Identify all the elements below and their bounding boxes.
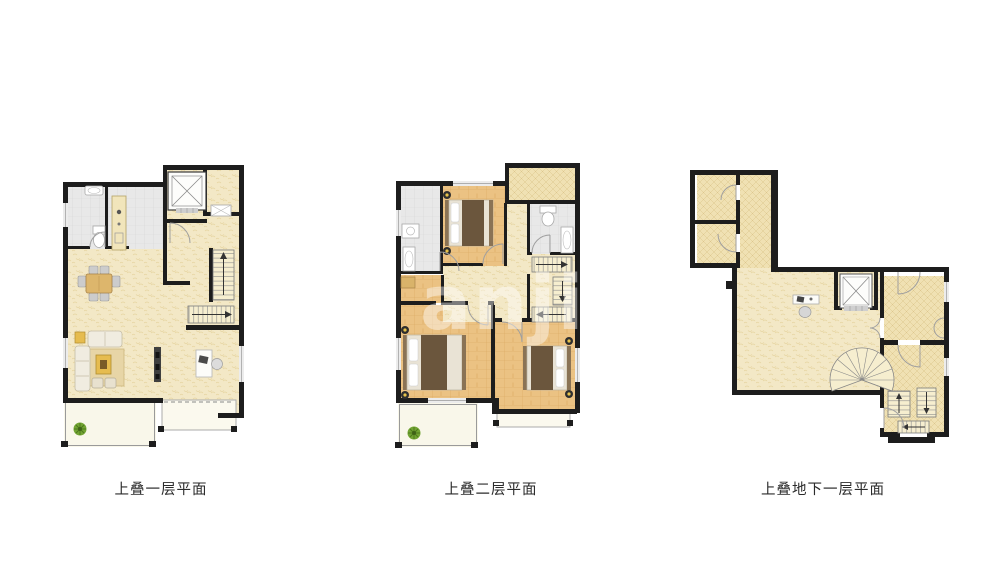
bay-window bbox=[493, 413, 573, 427]
floorplan-basement bbox=[690, 170, 949, 443]
caption-first-floor: 上叠一层平面 bbox=[51, 478, 271, 499]
stairs-up-icon bbox=[888, 391, 910, 417]
stairs-mid-icon bbox=[553, 277, 572, 305]
elevator-icon bbox=[840, 274, 872, 311]
kitchen-island bbox=[112, 196, 126, 250]
caption-second-floor: 上叠二层平面 bbox=[381, 478, 601, 499]
bed-icon-north bbox=[443, 191, 493, 255]
balcony bbox=[61, 400, 156, 447]
stairs-down-icon bbox=[917, 388, 936, 417]
balcony bbox=[395, 403, 478, 448]
plant-icon bbox=[408, 427, 421, 440]
caption-basement: 上叠地下一层平面 bbox=[713, 478, 933, 499]
stairs-run-icon bbox=[532, 257, 572, 272]
entry-steps-icon bbox=[898, 421, 929, 433]
stairs-down-icon bbox=[532, 307, 572, 322]
bed-icon-east bbox=[523, 337, 573, 398]
bath-sink-icon bbox=[561, 227, 573, 253]
floorplan-second-floor bbox=[395, 163, 580, 448]
laundry-sink-icon bbox=[403, 247, 415, 271]
dresser bbox=[401, 277, 415, 288]
ottoman bbox=[92, 378, 103, 388]
desk-chair-icon bbox=[212, 359, 223, 370]
desk-chair-icon bbox=[799, 307, 811, 318]
vent-box bbox=[211, 205, 231, 216]
ottoman bbox=[105, 378, 116, 388]
bathroom-sink-icon bbox=[85, 186, 103, 195]
plant-icon bbox=[74, 423, 87, 436]
tv-cabinet-icon bbox=[154, 347, 161, 382]
elevator-icon bbox=[168, 172, 206, 213]
stairs-up-icon bbox=[213, 250, 234, 300]
washing-machine-icon bbox=[402, 224, 419, 238]
stairs-run-icon bbox=[188, 306, 234, 323]
toilet-icon bbox=[93, 226, 105, 248]
side-table bbox=[75, 332, 85, 343]
floorplan-first-floor bbox=[61, 165, 244, 447]
bed-icon-west bbox=[401, 326, 466, 399]
floorplan-sheet: anjia 上叠一层平面 上叠二层平面 上叠地下一层平面 bbox=[0, 0, 983, 576]
living-room-set bbox=[75, 331, 124, 391]
